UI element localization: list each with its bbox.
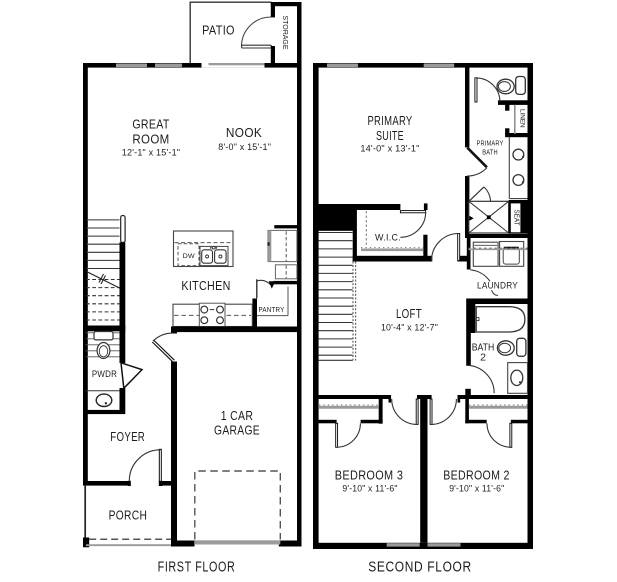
svg-text:W.I.C.: W.I.C.: [375, 233, 401, 244]
svg-text:1 CAR: 1 CAR: [221, 408, 253, 423]
svg-text:9'-10" x 11'-6": 9'-10" x 11'-6": [449, 484, 504, 495]
svg-text:STORAGE: STORAGE: [281, 16, 290, 50]
svg-text:FIRST FLOOR: FIRST FLOOR: [158, 560, 236, 576]
svg-text:8'-0" x 15'-1": 8'-0" x 15'-1": [218, 142, 271, 153]
svg-text:PRIMARY: PRIMARY: [367, 113, 412, 128]
svg-text:BATH: BATH: [482, 148, 498, 157]
svg-text:10'-4" x 12'-7": 10'-4" x 12'-7": [381, 323, 438, 334]
svg-text:SEAT: SEAT: [512, 210, 519, 227]
svg-text:14'-0" x 13'-1": 14'-0" x 13'-1": [360, 144, 419, 155]
svg-text:BEDROOM 3: BEDROOM 3: [335, 468, 404, 483]
svg-text:GARAGE: GARAGE: [214, 423, 260, 438]
svg-text:LINEN: LINEN: [519, 109, 526, 128]
svg-text:NOOK: NOOK: [226, 125, 262, 140]
svg-text:GREAT: GREAT: [132, 117, 169, 132]
svg-text:LAUNDRY: LAUNDRY: [477, 281, 518, 292]
svg-text:9'-10" x 11'-6": 9'-10" x 11'-6": [342, 484, 397, 495]
svg-text:SECOND FLOOR: SECOND FLOOR: [368, 560, 472, 576]
svg-text:2: 2: [480, 352, 486, 364]
svg-text:ROOM: ROOM: [132, 132, 169, 147]
svg-text:FOYER: FOYER: [110, 429, 145, 444]
svg-text:KITCHEN: KITCHEN: [181, 278, 230, 293]
svg-text:DW: DW: [183, 253, 196, 260]
svg-text:PORCH: PORCH: [109, 507, 148, 522]
svg-text:12'-1" x 15'-1": 12'-1" x 15'-1": [122, 148, 180, 159]
svg-text:PATIO: PATIO: [202, 23, 235, 38]
svg-text:PWDR: PWDR: [92, 369, 117, 380]
svg-text:SUITE: SUITE: [376, 128, 404, 143]
svg-text:PANTRY: PANTRY: [259, 305, 285, 314]
svg-text:LOFT: LOFT: [396, 306, 422, 321]
svg-text:BEDROOM 2: BEDROOM 2: [443, 468, 510, 483]
svg-text:PRIMARY: PRIMARY: [477, 139, 504, 148]
